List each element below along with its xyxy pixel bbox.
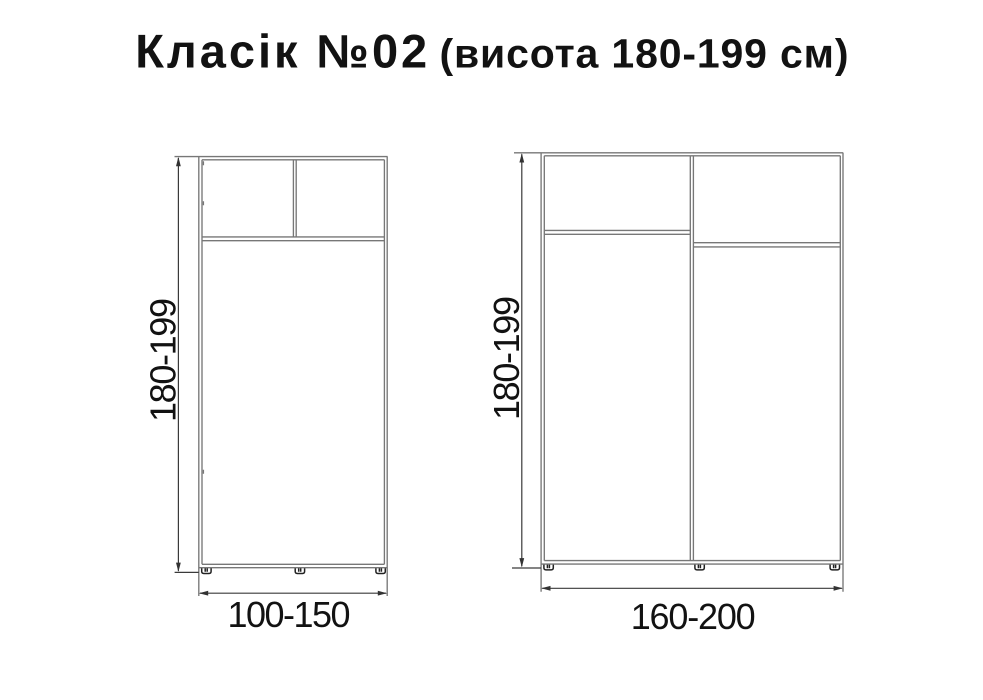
svg-text:100-150: 100-150 (228, 594, 351, 635)
svg-text:Класік №02: Класік №02 (135, 25, 427, 78)
svg-text:180-199: 180-199 (486, 296, 527, 420)
svg-text:180-199: 180-199 (143, 298, 184, 422)
svg-text:160-200: 160-200 (631, 596, 756, 637)
svg-text:(висота 180-199 см): (висота 180-199 см) (440, 31, 849, 77)
